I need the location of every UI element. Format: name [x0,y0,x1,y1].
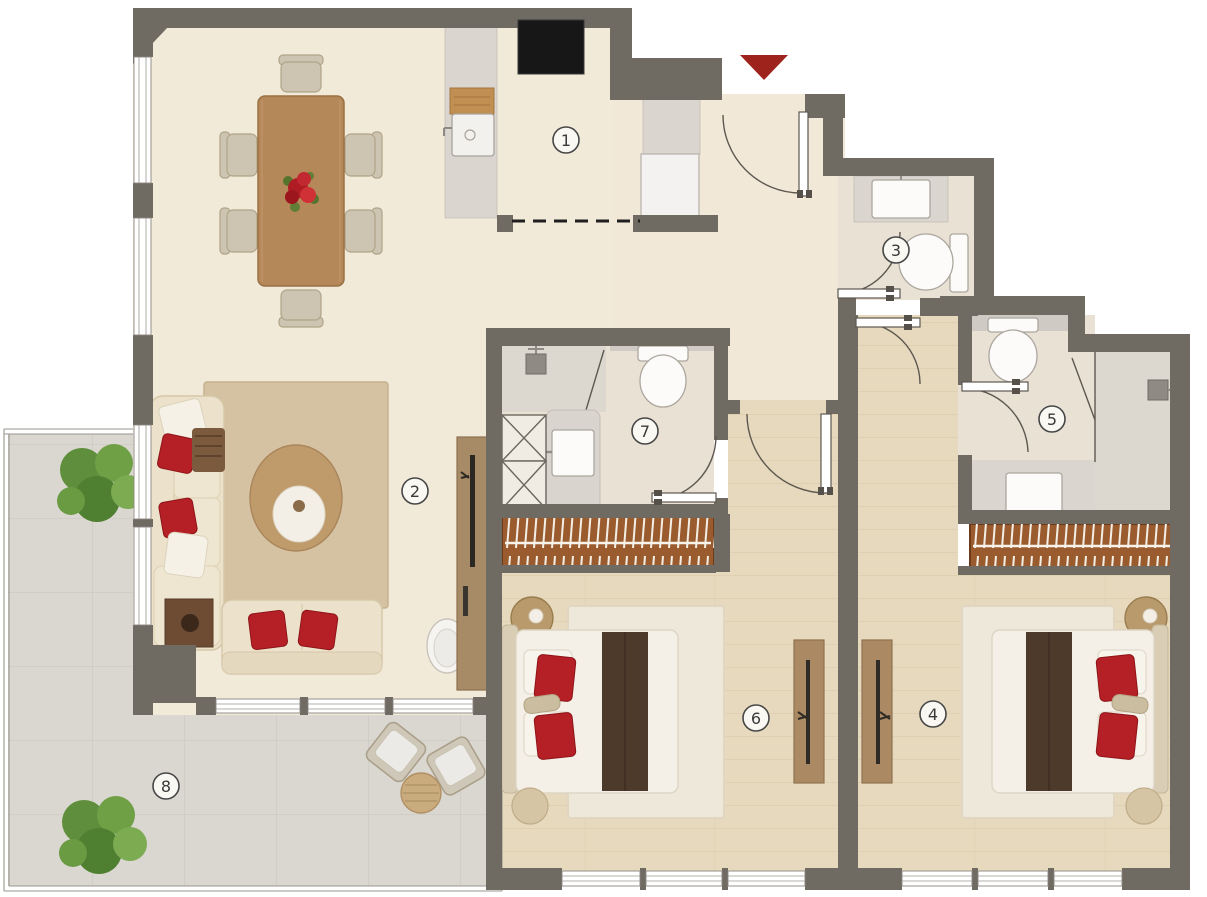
room-badge-kitchen: 1 [553,127,579,153]
window [562,871,805,886]
bathroom5-shower-floor [1095,352,1170,512]
linen-cabinet [502,415,546,509]
cooktop [518,20,584,74]
red-pillow [248,610,288,650]
room-badge-living: 2 [402,478,428,504]
shower-head-icon [526,354,546,374]
red-pillow [157,433,199,475]
sink-icon [552,430,594,476]
pouf [512,788,548,824]
window [902,871,1122,886]
tv [876,660,880,764]
bathroom7-shower-floor [502,346,606,412]
room-badge-bedroom4: 4 [920,701,946,727]
red-pillow [534,712,576,760]
tv-panel-bedroom4 [862,640,892,783]
pouf [1126,788,1162,824]
entrance-arrow-icon [740,55,788,80]
dining-chair [281,290,321,320]
kitchen-appliance [641,154,699,216]
shower-head-icon [1148,380,1168,400]
sink-icon [872,180,930,218]
white-pillow [163,531,208,578]
dining-chair [227,134,257,176]
dining-chair [281,62,321,92]
sink-icon [1006,473,1062,513]
toilet-icon [640,355,686,407]
room-badge-bath3: 3 [883,237,909,263]
tv-panel-bedroom6 [794,640,824,783]
room-badge-bedroom6: 6 [743,705,769,731]
toilet-icon [989,330,1037,382]
tv [806,660,810,764]
room-number: 7 [640,422,650,441]
throw-blanket [192,428,225,472]
window [216,699,473,713]
room-number: 5 [1047,410,1057,429]
red-pillow [1096,712,1138,760]
room-number: 3 [891,241,901,260]
closet-bedroom4 [970,524,1180,567]
room-number: 1 [561,131,571,150]
dining-chair [345,210,375,252]
floorplan-svg: 1 2 3 4 5 6 7 8 [0,0,1207,897]
room-number: 6 [751,709,761,728]
room-number: 2 [410,482,420,501]
terrace-side-table [401,773,441,813]
tv [470,455,475,567]
room-number: 8 [161,777,171,796]
corridor-floor [858,315,958,575]
sofa-two-seat [222,600,382,674]
vase [293,500,305,512]
kitchen-sink [452,114,494,156]
coffee-table-tray [273,486,325,542]
dining-chair [227,210,257,252]
room-number: 4 [928,705,938,724]
tv-console [457,437,490,690]
decor-bowl [181,614,199,632]
cutting-board [450,88,494,114]
dining-chair [345,134,375,176]
soundbar [463,586,468,616]
red-pillow [298,610,339,651]
room-badge-bath5: 5 [1039,406,1065,432]
floorplan-canvas: 1 2 3 4 5 6 7 8 [0,0,1207,897]
closet-bedroom6 [502,517,714,567]
room-badge-bath7: 7 [632,418,658,444]
room-badge-terrace: 8 [153,773,179,799]
